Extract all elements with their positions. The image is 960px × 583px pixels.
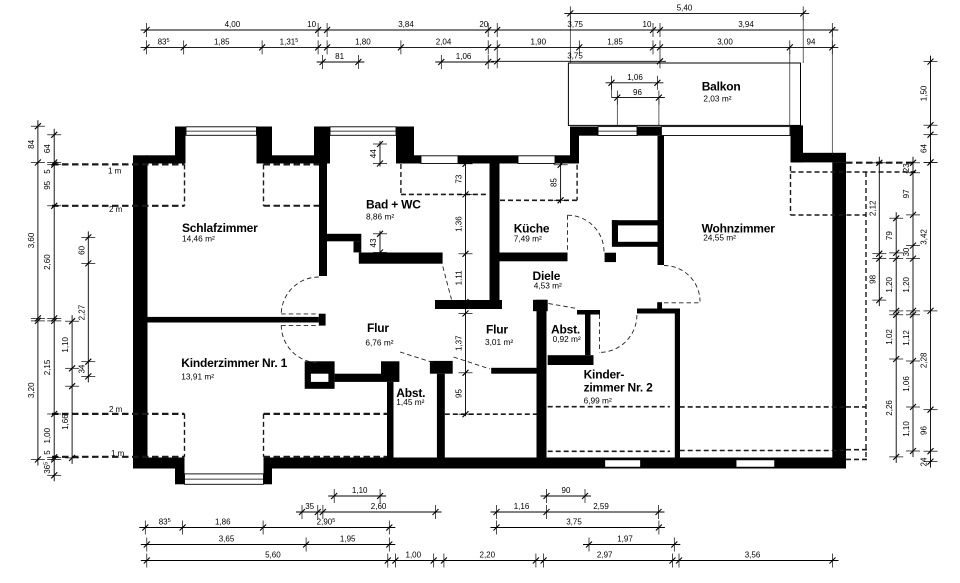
svg-text:1,95: 1,95 xyxy=(340,535,356,544)
svg-text:35: 35 xyxy=(305,502,314,511)
svg-text:1,85: 1,85 xyxy=(214,38,230,47)
svg-text:1,10: 1,10 xyxy=(902,421,911,437)
svg-text:1,37: 1,37 xyxy=(455,335,464,351)
svg-text:3,00: 3,00 xyxy=(717,38,733,47)
svg-text:60: 60 xyxy=(77,245,86,254)
svg-text:98: 98 xyxy=(868,274,877,283)
svg-text:1 m: 1 m xyxy=(108,167,122,176)
svg-text:3,20: 3,20 xyxy=(27,382,36,398)
svg-text:90: 90 xyxy=(562,486,571,495)
svg-text:43: 43 xyxy=(369,238,378,247)
svg-text:2 m: 2 m xyxy=(109,405,123,414)
svg-text:20: 20 xyxy=(479,20,488,29)
svg-text:1,06: 1,06 xyxy=(902,376,911,392)
svg-text:1,12: 1,12 xyxy=(902,330,911,346)
svg-text:44: 44 xyxy=(369,149,378,158)
svg-text:1,06: 1,06 xyxy=(456,52,472,61)
svg-text:2,60: 2,60 xyxy=(43,254,52,270)
svg-text:95: 95 xyxy=(455,389,464,398)
svg-text:Flur: Flur xyxy=(367,321,389,335)
svg-text:24: 24 xyxy=(920,457,929,466)
svg-text:1,36: 1,36 xyxy=(455,216,464,232)
svg-text:1,85: 1,85 xyxy=(607,38,623,47)
svg-text:1,90: 1,90 xyxy=(531,38,547,47)
svg-text:7,49 m²: 7,49 m² xyxy=(514,233,542,243)
svg-text:1,11: 1,11 xyxy=(455,270,464,286)
svg-text:95: 95 xyxy=(43,180,52,189)
svg-text:3,42: 3,42 xyxy=(920,229,929,245)
svg-text:97: 97 xyxy=(902,189,911,198)
svg-text:8,86 m²: 8,86 m² xyxy=(366,212,394,222)
svg-text:81: 81 xyxy=(335,52,344,61)
svg-text:64: 64 xyxy=(43,144,52,153)
svg-text:3,60: 3,60 xyxy=(27,232,36,248)
svg-text:1,00: 1,00 xyxy=(43,427,52,443)
svg-text:3,94: 3,94 xyxy=(738,20,754,29)
svg-text:1,10: 1,10 xyxy=(61,336,70,352)
svg-text:zimmer Nr. 2: zimmer Nr. 2 xyxy=(584,381,653,395)
svg-text:5,40: 5,40 xyxy=(677,4,693,13)
svg-text:79: 79 xyxy=(885,231,894,240)
svg-text:2,60: 2,60 xyxy=(371,502,387,511)
svg-text:3,75: 3,75 xyxy=(566,518,582,527)
svg-text:1,06: 1,06 xyxy=(627,73,643,82)
svg-text:64: 64 xyxy=(920,144,929,153)
svg-text:3,75: 3,75 xyxy=(567,52,583,61)
svg-text:Bad + WC: Bad + WC xyxy=(366,198,421,212)
svg-text:3,75: 3,75 xyxy=(567,20,583,29)
svg-text:94: 94 xyxy=(807,38,816,47)
svg-text:5,60: 5,60 xyxy=(265,551,281,560)
svg-text:1,20: 1,20 xyxy=(885,276,894,292)
svg-text:96: 96 xyxy=(920,426,929,435)
svg-text:73: 73 xyxy=(455,174,464,183)
svg-text:3,01 m²: 3,01 m² xyxy=(485,337,513,347)
svg-text:4,00: 4,00 xyxy=(225,20,241,29)
svg-text:Balkon: Balkon xyxy=(702,79,741,93)
svg-text:1,86: 1,86 xyxy=(215,518,231,527)
svg-text:23: 23 xyxy=(902,163,911,172)
svg-text:84: 84 xyxy=(27,139,36,148)
svg-text:1,66: 1,66 xyxy=(61,414,70,430)
svg-text:2,27: 2,27 xyxy=(77,304,86,320)
svg-text:1,02: 1,02 xyxy=(885,329,894,345)
svg-text:30: 30 xyxy=(902,247,911,256)
svg-text:1,80: 1,80 xyxy=(355,38,371,47)
svg-text:6,99 m²: 6,99 m² xyxy=(584,396,612,406)
svg-text:13,91 m²: 13,91 m² xyxy=(181,372,214,382)
svg-text:10: 10 xyxy=(643,20,652,29)
svg-text:24,55 m²: 24,55 m² xyxy=(703,233,736,243)
svg-text:2,12: 2,12 xyxy=(868,200,877,216)
svg-text:85: 85 xyxy=(550,178,559,187)
svg-text:3,84: 3,84 xyxy=(398,20,414,29)
svg-text:3,56: 3,56 xyxy=(745,551,761,560)
svg-text:1,10: 1,10 xyxy=(352,486,368,495)
svg-text:6,76 m²: 6,76 m² xyxy=(365,338,393,348)
svg-text:2,97: 2,97 xyxy=(597,551,613,560)
svg-text:10: 10 xyxy=(307,20,316,29)
svg-text:1,20: 1,20 xyxy=(902,276,911,292)
svg-text:96: 96 xyxy=(633,88,642,97)
svg-text:Kinderzimmer Nr. 1: Kinderzimmer Nr. 1 xyxy=(181,356,287,370)
svg-text:3,65: 3,65 xyxy=(219,535,235,544)
svg-text:0,92 m²: 0,92 m² xyxy=(553,334,581,344)
svg-text:2,28: 2,28 xyxy=(920,352,929,368)
svg-text:2,15: 2,15 xyxy=(43,359,52,375)
svg-text:1,50: 1,50 xyxy=(920,85,929,101)
svg-text:2 m: 2 m xyxy=(109,205,123,214)
svg-text:Kinder-: Kinder- xyxy=(584,368,625,382)
svg-text:2,26: 2,26 xyxy=(885,400,894,416)
svg-text:1 m: 1 m xyxy=(111,449,125,458)
svg-text:34: 34 xyxy=(77,364,86,373)
svg-text:2,20: 2,20 xyxy=(480,551,496,560)
svg-text:2,59: 2,59 xyxy=(593,502,609,511)
svg-text:1,45 m²: 1,45 m² xyxy=(396,397,424,407)
svg-text:2,04: 2,04 xyxy=(436,38,452,47)
svg-text:1,00: 1,00 xyxy=(406,551,422,560)
svg-text:1,97: 1,97 xyxy=(617,535,633,544)
svg-text:Flur: Flur xyxy=(486,323,508,337)
svg-text:1,16: 1,16 xyxy=(514,502,530,511)
svg-text:5: 5 xyxy=(43,450,52,455)
svg-text:5: 5 xyxy=(43,169,52,174)
svg-text:14,46 m²: 14,46 m² xyxy=(182,233,215,243)
svg-text:4,53 m²: 4,53 m² xyxy=(534,281,562,291)
svg-text:2,03 m²: 2,03 m² xyxy=(703,94,731,104)
